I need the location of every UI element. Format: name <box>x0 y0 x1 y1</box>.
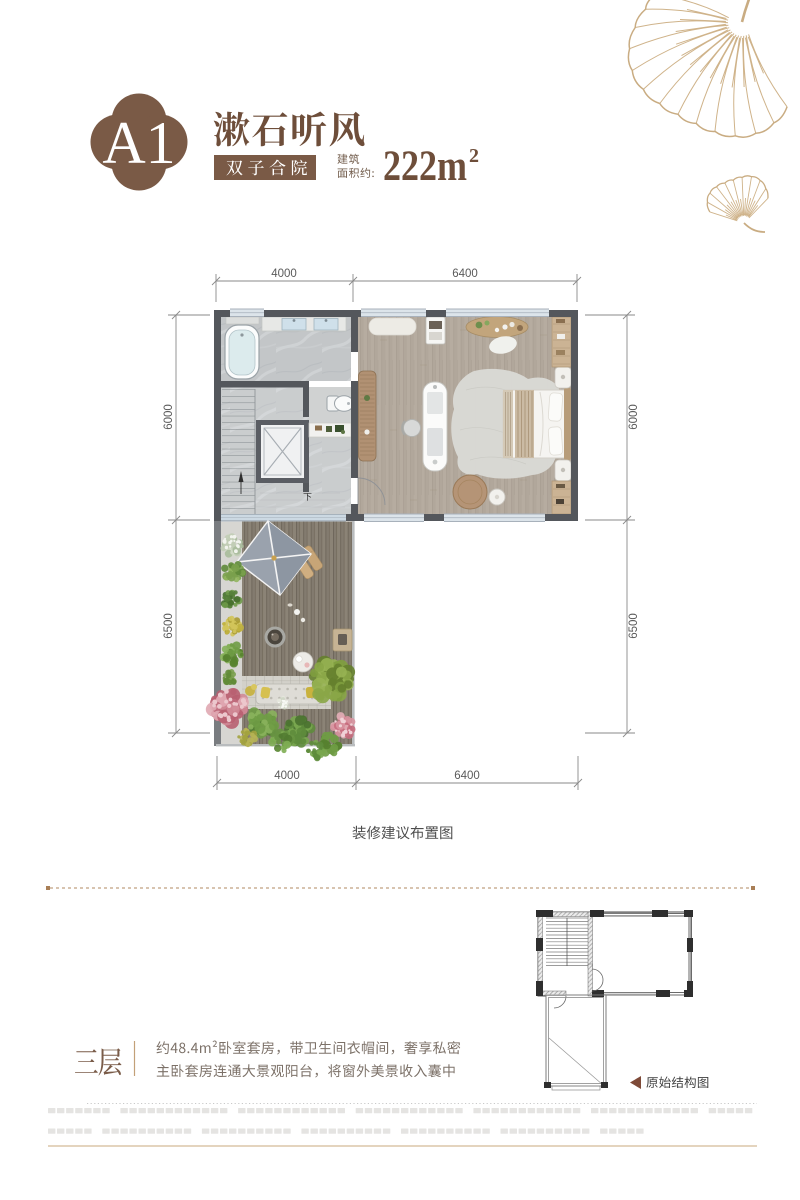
svg-text:222m: 222m <box>383 143 467 190</box>
svg-text:6500: 6500 <box>163 613 175 639</box>
svg-text:4000: 4000 <box>271 268 297 280</box>
svg-text:A1: A1 <box>102 110 175 176</box>
svg-text:6000: 6000 <box>163 404 175 430</box>
svg-text:6000: 6000 <box>628 404 640 430</box>
svg-text:6400: 6400 <box>452 268 478 280</box>
svg-text:2: 2 <box>469 145 479 167</box>
svg-text:6400: 6400 <box>454 770 480 782</box>
svg-text:6500: 6500 <box>628 613 640 639</box>
svg-text:4000: 4000 <box>274 770 300 782</box>
